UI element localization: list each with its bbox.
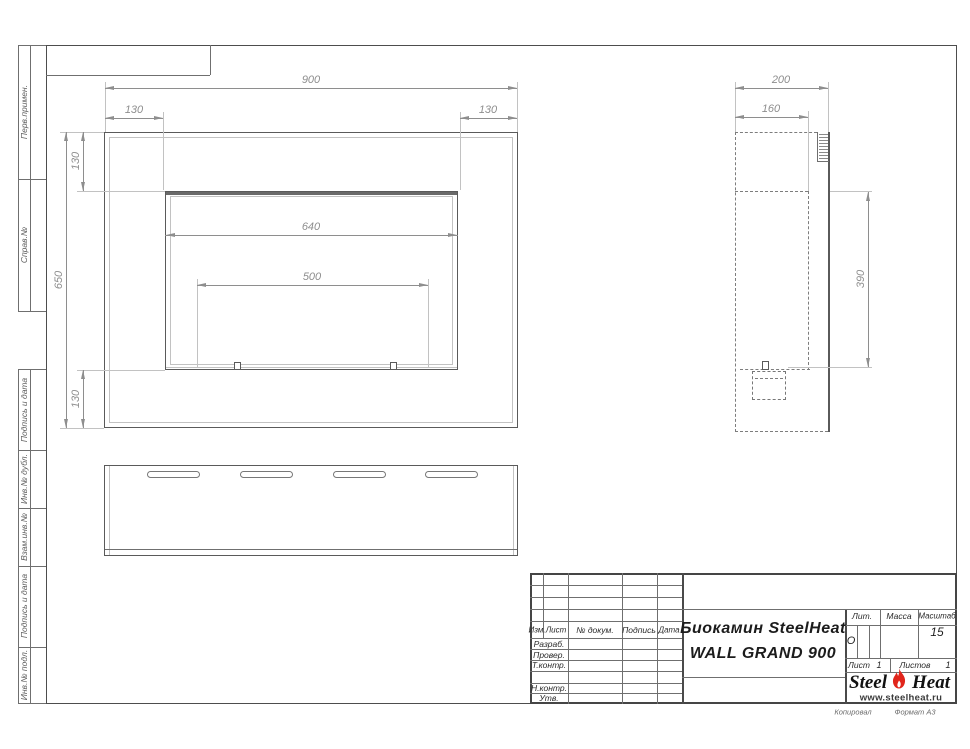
dim-arrow [81,419,85,428]
burner-edge-line [166,367,457,368]
dim-front-width: 900 [271,74,351,86]
document-title-line2: WALL GRAND 900 [690,645,836,663]
title-block-line [530,621,682,622]
margin-strip-line [18,369,46,370]
margin-label-podpis-data-2: Подпись и дата [19,574,29,638]
title-block-line [682,677,845,678]
burner-tab [390,362,397,370]
dim-line [735,88,828,89]
margin-label-vzam-inv: Взам.инв.№ [19,513,29,561]
dim-arrow [166,233,175,237]
firebox-top-edge [166,192,457,195]
margin-strip-line [18,566,46,567]
row-tkontr: Т.контр. [532,660,566,670]
ext-line [77,370,165,371]
dim-arrow [799,115,808,119]
dim-arrow [735,86,744,90]
corner-stamp-line [46,75,210,76]
side-hidden-left [735,132,736,432]
side-hidden-opening-top [735,191,808,192]
dim-line [735,117,808,118]
title-block-line [530,597,682,598]
logo-steel-text: Steel [849,672,887,694]
dim-arrow [81,370,85,379]
margin-label-inv-dubl: Инв.№ дубл. [19,454,29,504]
vent-slot [240,471,293,478]
dim-front-right: 130 [458,104,518,116]
side-hidden-shelf [740,369,810,370]
bracket-edge [817,161,829,162]
ext-line [197,279,198,368]
ext-line [828,82,829,132]
scale-label: Масштаб [918,612,955,621]
dim-line [66,132,67,428]
title-block-line [530,585,682,586]
ext-line [808,111,809,191]
document-title-line1: Биокамин SteelHeat [680,620,846,638]
logo-heat-text: Heat [912,672,950,694]
dim-side-opening-height: 390 [855,270,867,288]
vent-slot [333,471,386,478]
ext-line [428,279,429,368]
margin-strip-line [18,311,46,312]
bottom-fold-line [109,466,110,555]
dim-arrow [508,86,517,90]
margin-label-perv-primen: Перв.примен. [19,85,29,139]
row-razrab: Разраб. [534,639,565,649]
dim-line [868,192,869,367]
dim-arrow [866,358,870,367]
dim-arrow [64,419,68,428]
dim-side-inner-depth: 160 [731,103,811,115]
title-block-line [530,671,682,672]
bottom-fold-line [105,549,517,550]
dim-front-left: 130 [104,104,164,116]
dim-arrow [105,116,114,120]
margin-strip-line [18,508,46,509]
ext-line [77,191,165,192]
side-hidden-bottom [735,431,828,432]
dim-front-bottom-offset: 130 [70,390,82,408]
dim-front-height: 650 [53,271,65,289]
dim-arrow [448,233,457,237]
margin-label-sprav-no: Справ.№ [19,227,29,263]
dim-side-depth: 200 [741,74,821,86]
sheet-label: Лист [848,660,870,670]
dim-arrow [419,283,428,287]
dim-arrow [154,116,163,120]
row-nkontr: Н.контр. [531,683,567,693]
drawing-sheet: Перв.примен. Справ.№ Подпись и дата Инв.… [0,0,970,749]
dim-arrow [105,86,114,90]
corner-stamp-line [210,45,211,75]
dim-front-burner: 500 [272,271,352,283]
burner-box-hidden [752,371,786,400]
bottom-fold-line [513,466,514,555]
burner-tab [234,362,241,370]
bracket-hatch [819,134,828,160]
mass-label: Масса [886,611,911,621]
burner-tab [762,361,769,370]
dim-line [105,88,517,89]
vent-slot [147,471,200,478]
scale-value: 15 [930,625,943,639]
ext-line [460,112,461,190]
margin-strip-line [18,45,46,46]
logo-url: www.steelheat.ru [860,693,943,704]
title-block-line [845,658,957,659]
margin-strip-line [30,369,31,704]
dim-line [197,285,428,286]
dim-arrow [508,116,517,120]
title-block-line [880,609,881,658]
title-block-line [857,625,858,658]
bracket-edge [817,132,818,162]
rev-col-ndocum: № докум. [576,625,613,635]
dim-arrow [866,192,870,201]
dim-arrow [197,283,206,287]
margin-strip-line [30,45,31,311]
side-solid-right [828,132,830,432]
footer-format: Формат А3 [894,708,935,717]
burner-box-inner [755,378,783,379]
side-hidden-opening-back [808,191,809,370]
margin-strip-line [18,179,46,180]
bottom-outline [104,465,518,556]
footer-copied: Копировал [834,708,871,717]
dim-arrow [81,182,85,191]
dim-line [165,235,458,236]
ext-line [163,112,164,190]
sheet-number: 1 [876,660,881,670]
rev-col-podpis: Подпись [622,625,656,635]
dim-front-top-offset: 130 [70,152,82,170]
title-block-line [530,609,957,610]
margin-label-podpis-data-1: Подпись и дата [19,378,29,442]
rev-col-data: Дата [658,626,679,635]
vent-slot [425,471,478,478]
row-prover: Провер. [533,650,565,660]
margin-strip-line [18,647,46,648]
dim-arrow [735,115,744,119]
flame-icon [892,668,907,694]
rev-col-list: Лист [546,626,567,635]
ext-line [60,428,104,429]
sheets-total: 1 [945,660,950,670]
title-block-line [682,573,684,704]
title-block-line [869,625,870,658]
side-hidden-top [735,132,817,133]
margin-label-inv-podl: Инв.№ подл. [19,650,29,700]
rev-col-izm: Изм. [528,626,545,635]
dim-arrow [819,86,828,90]
ext-line [788,367,872,368]
margin-strip-line [18,703,46,704]
dim-arrow [81,132,85,141]
dim-arrow [64,132,68,141]
margin-strip-line [18,450,46,451]
lit-label: Лит. [852,611,872,621]
lit-value: О [847,635,856,647]
dim-arrow [460,116,469,120]
dim-front-opening: 640 [271,221,351,233]
row-utv: Утв. [539,693,558,703]
